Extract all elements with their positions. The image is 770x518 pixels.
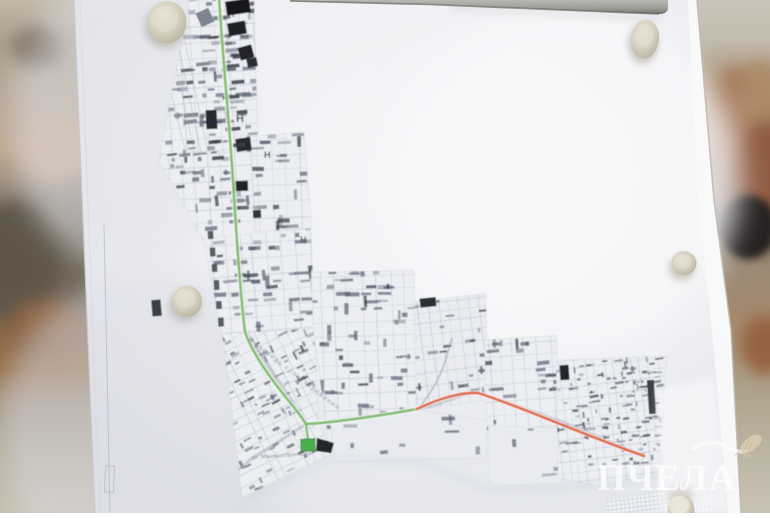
svg-text:H: H bbox=[264, 150, 271, 160]
svg-text:H: H bbox=[300, 235, 307, 245]
svg-text:ПЧЕЛА: ПЧЕЛА bbox=[597, 458, 736, 499]
svg-text:H: H bbox=[236, 113, 244, 125]
